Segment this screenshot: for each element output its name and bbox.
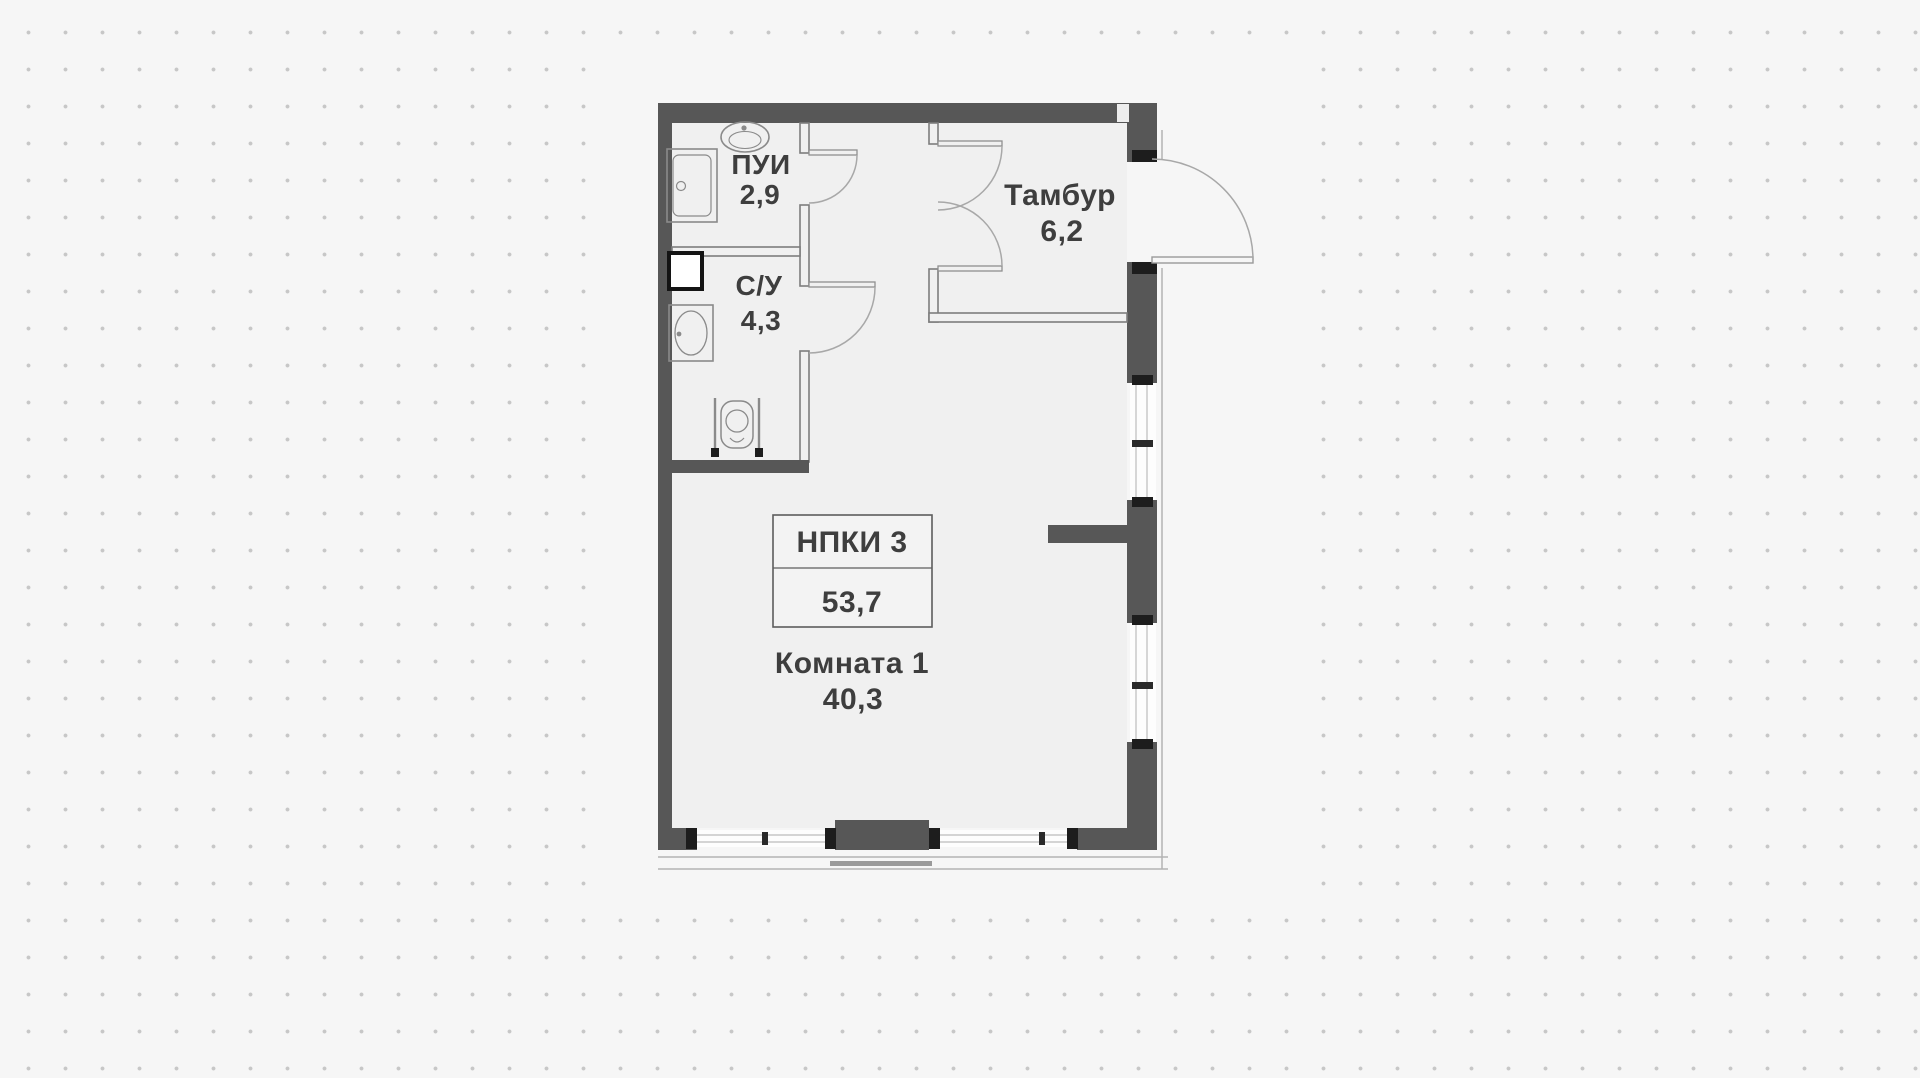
- toilet-rail-foot-right: [755, 448, 763, 457]
- window-bottom-1-tick-right: [825, 828, 836, 849]
- floorplan-drawing: НПКИ 3 53,7 ПУИ 2,9 С/У 4,3 Тамбур 6,2 К…: [0, 0, 1920, 1078]
- sill-pier-band: [830, 861, 932, 866]
- entrance-tick-top: [1132, 150, 1157, 162]
- door-entrance-leaf: [1152, 257, 1253, 263]
- unit-total-area-label: 53,7: [822, 586, 882, 619]
- partition-hall-bottom: [800, 351, 809, 462]
- window-bottom-1-tick-left: [686, 828, 697, 849]
- wall-right-mid2: [1127, 500, 1157, 623]
- wall-right-stub: [1048, 525, 1130, 543]
- partition-tambour-top-stub: [929, 123, 938, 144]
- room-label-pui-area: 2,9: [740, 179, 780, 210]
- door-tambour-upper-leaf: [938, 141, 1002, 146]
- partition-tambour-bottom: [929, 313, 1127, 322]
- window-bottom-1-mullion: [762, 832, 768, 845]
- window-right-2-tick-bottom: [1132, 739, 1153, 749]
- wall-right-bottom: [1127, 742, 1157, 850]
- window-bottom-2-mullion: [1039, 832, 1045, 845]
- door-pui-leaf: [809, 150, 857, 155]
- toilet-rail-foot-left: [711, 448, 719, 457]
- window-right-2-tick-top: [1132, 615, 1153, 625]
- wall-top: [658, 103, 1157, 123]
- window-right-1-tick-bottom: [1132, 497, 1153, 507]
- floorplan-canvas: НПКИ 3 53,7 ПУИ 2,9 С/У 4,3 Тамбур 6,2 К…: [0, 0, 1920, 1078]
- entrance-tick-bottom: [1132, 262, 1157, 274]
- window-bottom-2-tick-left: [929, 828, 940, 849]
- unit-code-label: НПКИ 3: [796, 526, 907, 559]
- wall-top-seam: [1117, 104, 1129, 122]
- room-label-pui-name: ПУИ: [731, 149, 790, 180]
- door-tambour-lower-leaf: [938, 266, 1002, 271]
- wall-su-bottom: [658, 460, 809, 473]
- sink-oval-faucet-dot: [741, 125, 746, 130]
- unit-info-box: НПКИ 3 53,7: [773, 515, 932, 627]
- room-label-tambour-area: 6,2: [1040, 215, 1083, 248]
- wall-left: [658, 103, 672, 850]
- room-label-room1-area: 40,3: [823, 683, 883, 716]
- vent-shaft: [669, 253, 702, 289]
- room-label-su-name: С/У: [736, 270, 783, 301]
- window-right-2-mullion: [1132, 682, 1153, 689]
- window-bottom-2-tick-right: [1067, 828, 1078, 849]
- door-su-leaf: [809, 282, 875, 287]
- washbasin-faucet-dot: [677, 332, 682, 337]
- window-right-1-tick-top: [1132, 375, 1153, 385]
- window-bottom-1: [697, 830, 825, 847]
- room-label-room1-name: Комната 1: [775, 647, 929, 680]
- window-bottom-2: [940, 830, 1067, 847]
- room-label-tambour-name: Тамбур: [1004, 179, 1116, 212]
- partition-hall-top-stub: [800, 123, 809, 153]
- window-right-1-mullion: [1132, 440, 1153, 447]
- partition-hall-mid: [800, 205, 809, 286]
- wall-right-mid1: [1127, 262, 1157, 383]
- room-label-su-area: 4,3: [741, 305, 781, 336]
- wall-bottom-pier: [835, 820, 929, 850]
